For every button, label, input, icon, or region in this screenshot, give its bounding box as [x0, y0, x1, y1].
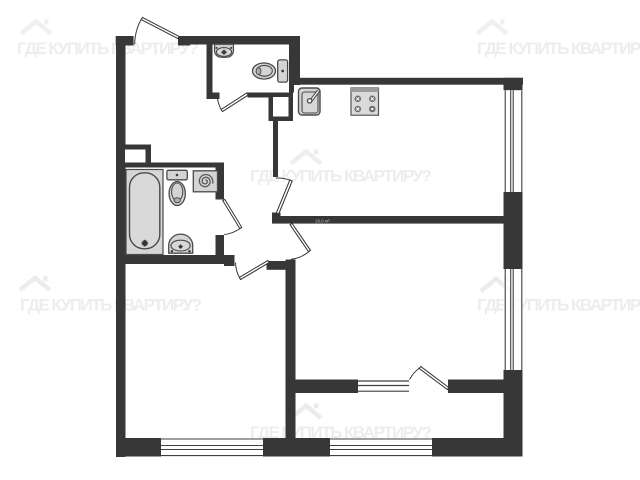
- svg-text:ГДЕ КУПИТЬ КВАРТИРУ?: ГДЕ КУПИТЬ КВАРТИРУ?: [17, 39, 199, 58]
- svg-text:ГДЕ КУПИТЬ КВАРТИРУ?: ГДЕ КУПИТЬ КВАРТИРУ?: [20, 295, 202, 314]
- svg-text:ГДЕ КУПИТЬ КВАРТИРУ?: ГДЕ КУПИТЬ КВАРТИРУ?: [477, 295, 640, 314]
- svg-text:ГДЕ КУПИТЬ КВАРТИРУ?: ГДЕ КУПИТЬ КВАРТИРУ?: [477, 39, 640, 58]
- svg-text:18,6 м²: 18,6 м²: [315, 219, 330, 224]
